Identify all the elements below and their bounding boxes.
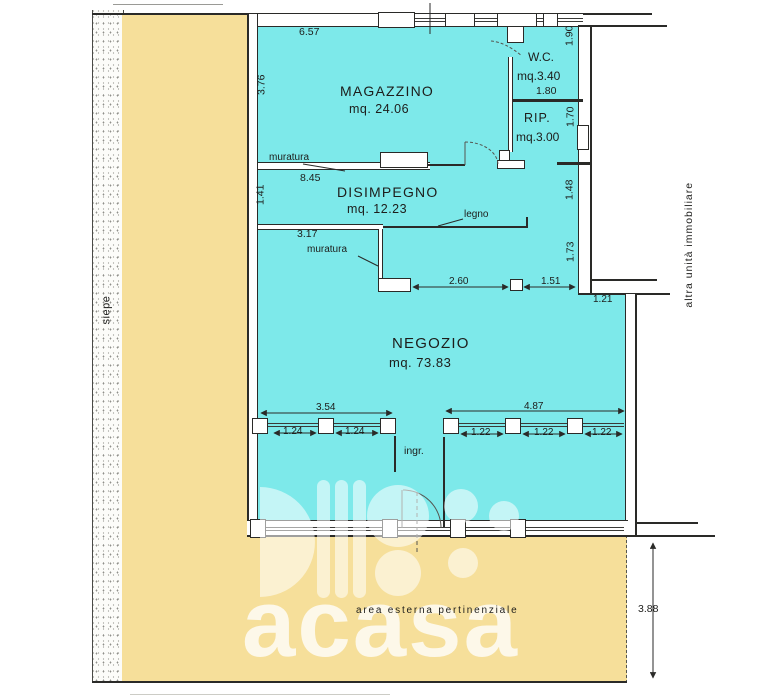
floorplan-page: acasa 6.57 3.76 MAGAZZINO mq. 24.06 W.C.… xyxy=(0,0,765,698)
label-altra-unita: altra unità immobiliare xyxy=(684,182,696,308)
top-wall-pillar-3 xyxy=(497,13,537,27)
corridor-left-wall xyxy=(394,436,396,472)
sliding-door-panel xyxy=(380,152,428,168)
band-pillar-l3 xyxy=(380,418,396,434)
storefront-pillar-1 xyxy=(250,519,266,538)
neighbor-wall-bottom-outer xyxy=(628,535,715,537)
top-window-glazing-2b xyxy=(475,21,497,22)
wall-disimpegno-legno xyxy=(383,226,527,228)
label-ingresso: ingr. xyxy=(404,446,424,458)
dim-band-right: 4.87 xyxy=(524,401,543,412)
scan-line-bottom xyxy=(130,694,390,695)
wall-disimpegno-muratura xyxy=(258,224,383,230)
wall-right-lower xyxy=(625,294,637,537)
external-area-bottom-edge xyxy=(92,681,627,683)
band-pillar-l2 xyxy=(318,418,334,434)
neighbor-wall-step-upper xyxy=(592,279,657,281)
top-wall-pillar-4 xyxy=(543,13,558,27)
band-pillar-r2 xyxy=(505,418,521,434)
rip-door-jamb-b xyxy=(497,160,525,169)
room-magazzino-area: mq. 24.06 xyxy=(349,103,409,117)
dim-disimpegno-width: 8.45 xyxy=(300,173,320,185)
room-magazzino-name: MAGAZZINO xyxy=(340,84,434,99)
corridor-right-wall xyxy=(443,437,445,527)
dim-band-left: 3.54 xyxy=(316,402,335,413)
floor-negozio-ext xyxy=(577,294,625,520)
dim-wc-width: 1.80 xyxy=(536,86,556,98)
wall-storefront xyxy=(247,520,628,537)
dim-rip-right: 1.70 xyxy=(565,107,577,127)
label-muratura-mid: muratura xyxy=(307,244,347,255)
dim-external-depth: 3.88 xyxy=(638,604,658,616)
neighbor-wall-step-lower xyxy=(578,293,670,295)
dim-magazzino-left: 3.76 xyxy=(256,75,268,95)
dim-legno-left: 3.17 xyxy=(297,229,317,241)
watermark-brand: acasa xyxy=(242,576,519,672)
storefront-glazing-2 xyxy=(252,530,624,531)
band-pillar-r3 xyxy=(567,418,583,434)
storefront-pillar-4 xyxy=(510,519,526,538)
dim-right-mid: 1.73 xyxy=(565,242,577,262)
label-siepe: siepe xyxy=(100,296,112,325)
label-muratura-top: muratura xyxy=(269,152,309,163)
wc-door-jamb xyxy=(507,26,524,43)
stub-pillar xyxy=(378,278,411,292)
wall-stub-muratura xyxy=(378,229,383,279)
band-pillar-l1 xyxy=(252,418,268,434)
top-window-glazing-1 xyxy=(415,18,445,19)
wall-wc-left xyxy=(508,57,513,152)
room-disimpegno-area: mq. 12.23 xyxy=(347,203,407,217)
dim-win-left-1: 1.24 xyxy=(283,426,302,437)
top-window-glazing-2 xyxy=(475,18,497,19)
mid-pillar xyxy=(510,279,523,291)
legno-end-tick xyxy=(526,217,528,228)
wall-magazzino-thin xyxy=(428,164,465,166)
external-area-left xyxy=(122,14,258,683)
storefront-pillar-2 xyxy=(382,519,398,538)
dim-opening-b: 1.51 xyxy=(541,276,560,287)
hedge-strip xyxy=(92,10,124,683)
room-negozio-name: NEGOZIO xyxy=(392,336,470,353)
dim-top-width: 6.57 xyxy=(299,27,319,39)
dim-win-right-3: 1.22 xyxy=(592,427,611,438)
label-legno: legno xyxy=(464,209,488,220)
top-window-glazing-1b xyxy=(415,21,445,22)
scan-line-top xyxy=(113,4,223,5)
top-wall-pillar-1 xyxy=(378,12,415,28)
dim-disimpegno-left: 1.41 xyxy=(255,185,267,205)
room-wc-area: mq.3.40 xyxy=(517,70,560,83)
rip-window xyxy=(577,125,589,150)
wall-right-upper xyxy=(578,26,592,294)
storefront-pillar-3 xyxy=(450,519,466,538)
neighbor-wall-top xyxy=(578,25,667,27)
dim-wc-right: 1.90 xyxy=(564,26,576,46)
room-negozio-area: mq. 73.83 xyxy=(389,356,451,370)
dim-right-ext: 1.21 xyxy=(593,294,612,305)
dim-win-right-1: 1.22 xyxy=(471,427,490,438)
dim-opening-a: 2.60 xyxy=(449,276,468,287)
room-disimpegno-name: DISIMPEGNO xyxy=(337,185,438,200)
top-wall-pillar-2 xyxy=(445,13,475,27)
dim-disimpegno-right: 1.48 xyxy=(564,180,576,200)
room-rip-area: mq.3.00 xyxy=(516,131,559,144)
room-rip-name: RIP. xyxy=(524,112,551,126)
storefront-glazing-1 xyxy=(252,527,624,528)
wall-rip-bottom xyxy=(557,162,592,165)
room-wc-name: W.C. xyxy=(528,51,554,64)
dim-win-left-2: 1.24 xyxy=(345,426,364,437)
band-right-glazing-1 xyxy=(443,423,624,424)
neighbor-wall-bottom-inner xyxy=(637,522,698,524)
dim-win-right-2: 1.22 xyxy=(534,427,553,438)
wall-wc-rip-divider xyxy=(513,99,583,102)
band-pillar-r1 xyxy=(443,418,459,434)
label-area-esterna: area esterna pertinenziale xyxy=(356,605,518,616)
